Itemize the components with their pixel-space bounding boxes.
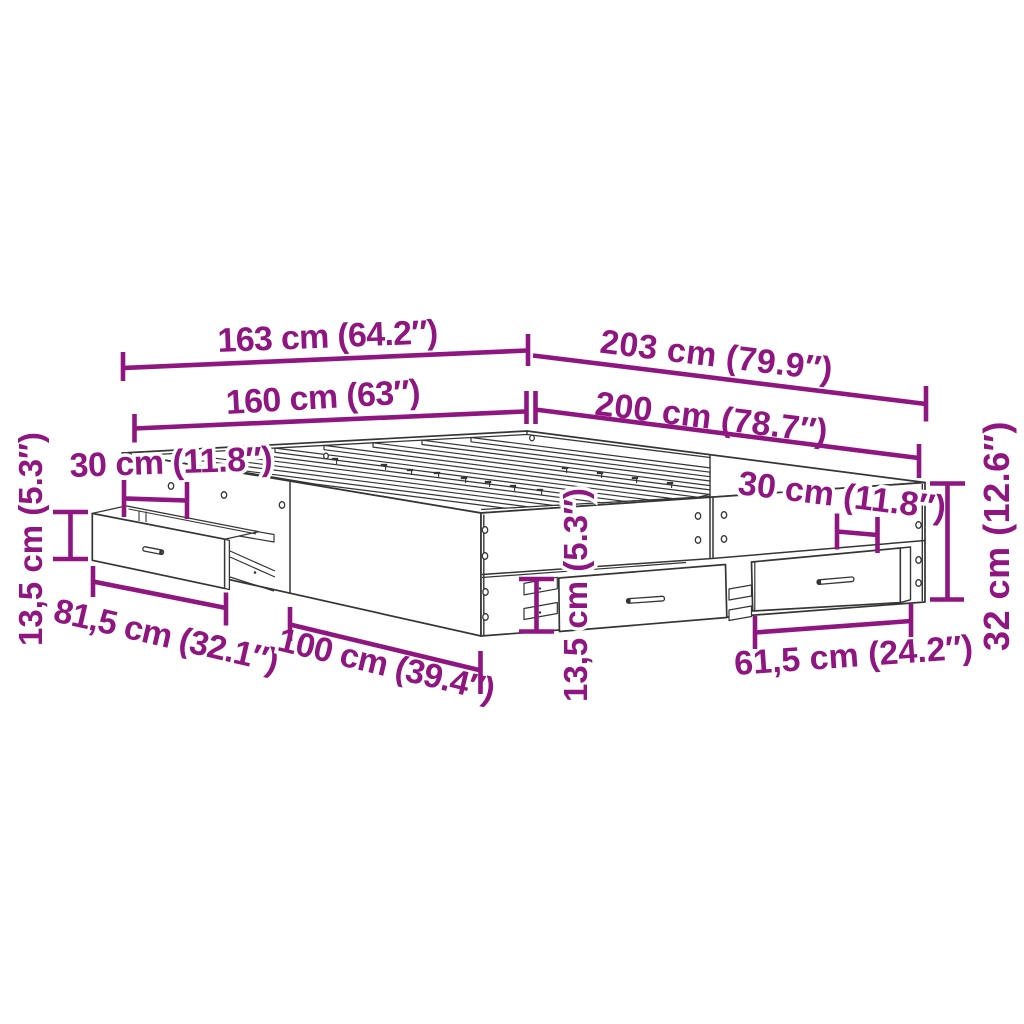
svg-text:81,5 cm (32.1″): 81,5 cm (32.1″) — [50, 592, 281, 680]
svg-text:163 cm (64.2″): 163 cm (64.2″) — [217, 313, 438, 360]
svg-text:13,5 cm (5.3″): 13,5 cm (5.3″) — [557, 488, 594, 702]
svg-text:160 cm (63″): 160 cm (63″) — [225, 373, 421, 422]
svg-text:32 cm (12.6″): 32 cm (12.6″) — [976, 421, 1017, 651]
svg-text:13,5 cm (5.3″): 13,5 cm (5.3″) — [12, 432, 49, 646]
svg-text:61,5 cm (24.2″): 61,5 cm (24.2″) — [733, 628, 974, 683]
svg-text:30 cm (11.8″): 30 cm (11.8″) — [69, 440, 273, 485]
